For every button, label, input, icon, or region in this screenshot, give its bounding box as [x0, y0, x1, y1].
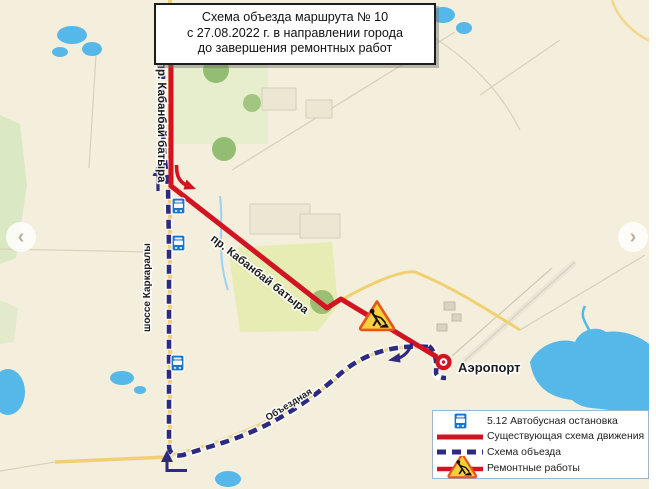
roadworks-sign-icon	[433, 456, 487, 480]
label-road-kabanbay-vertical: пр. Кабанбай батыра	[155, 62, 167, 183]
label-highway-karkaraly: шоссе Каркаралы	[142, 243, 153, 332]
legend-row-existing-route: Существующая схема движения	[433, 429, 648, 445]
map-screenshot: пр. Кабанбай батыра пр. Кабанбай батыра …	[0, 0, 656, 489]
chevron-right-icon: ›	[630, 227, 637, 247]
title-line-2: с 27.08.2022 г. в направлении города	[164, 26, 426, 42]
label-airport: Аэропорт	[458, 360, 521, 375]
carousel-next-button[interactable]: ›	[618, 222, 648, 252]
solid-red-line-icon	[433, 433, 487, 441]
legend-label: 5.12 Автобусная остановка	[487, 416, 618, 427]
title-box: Схема объезда маршрута № 10 с 27.08.2022…	[154, 3, 436, 65]
carousel-gutter	[649, 0, 656, 489]
bus-stop-icon	[172, 198, 185, 214]
legend: 5.12 Автобусная остановка Существующая с…	[432, 410, 649, 479]
legend-row-bus-stop: 5.12 Автобусная остановка	[433, 413, 648, 429]
legend-row-roadworks: Ремонтные работы	[433, 460, 648, 476]
legend-label: Схема объезда	[487, 447, 561, 458]
title-line-1: Схема объезда маршрута № 10	[164, 10, 426, 26]
chevron-left-icon: ‹	[18, 227, 25, 247]
bus-stop-icon	[171, 355, 184, 371]
title-line-3: до завершения ремонтных работ	[164, 41, 426, 57]
carousel-prev-button[interactable]: ‹	[6, 222, 36, 252]
legend-label: Существующая схема движения	[487, 431, 644, 442]
legend-label: Ремонтные работы	[487, 463, 580, 474]
bus-stop-sign-icon	[433, 411, 487, 431]
bus-stop-icon	[172, 235, 185, 251]
